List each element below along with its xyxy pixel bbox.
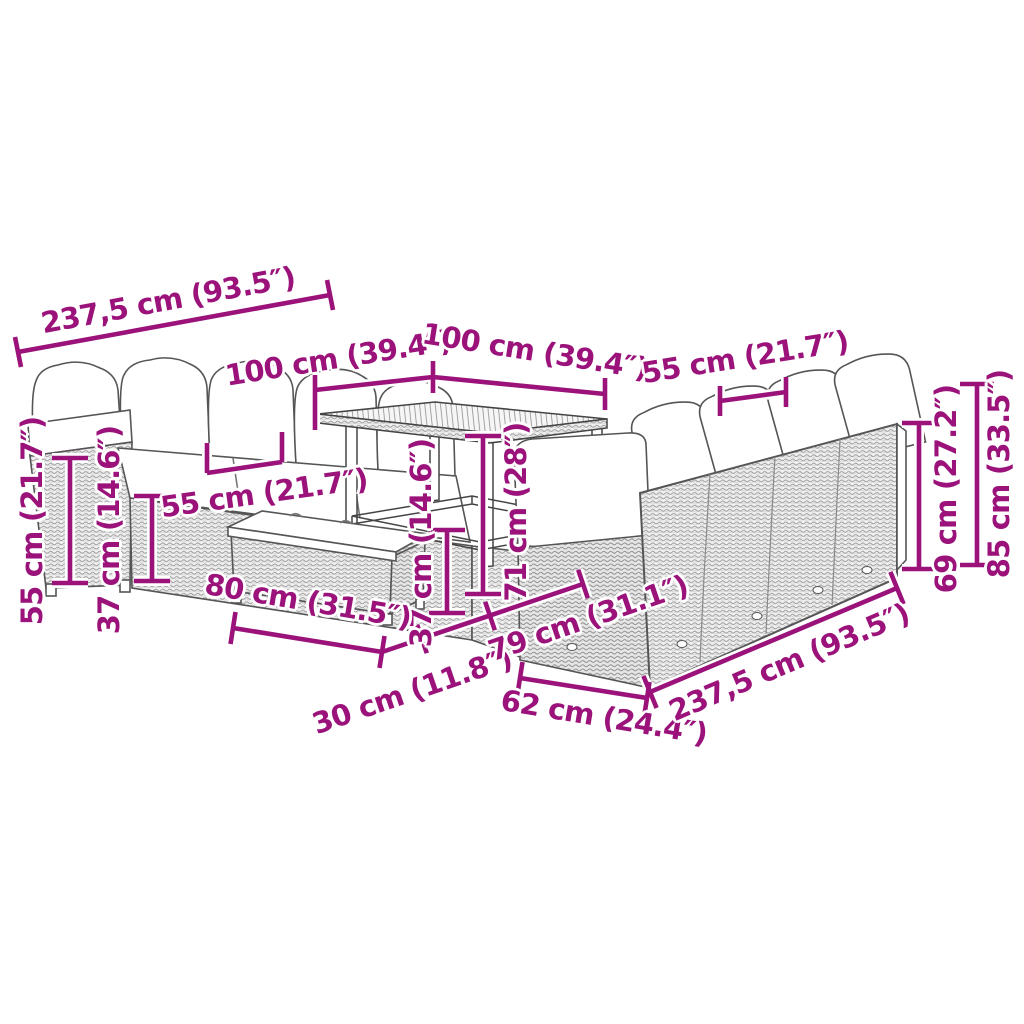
dim-label-left-back-height: 55 cm (21.7″)	[15, 417, 49, 626]
dim-label-table-height: 71 cm (28″)	[499, 423, 533, 602]
dim-label-left-seat-height: 37 cm (14.6″)	[92, 426, 126, 635]
right-sofa-arm	[897, 424, 906, 570]
dimension-diagram: 237,5 cm (93.5″) 100 cm (39.4″) 100 cm (…	[0, 0, 1024, 1024]
dim-label-back-height: 69 cm (27.2″)	[929, 385, 963, 594]
right-sofa-end-cushion	[514, 433, 650, 552]
dim-label-total-height: 85 cm (33.5″)	[982, 370, 1016, 579]
